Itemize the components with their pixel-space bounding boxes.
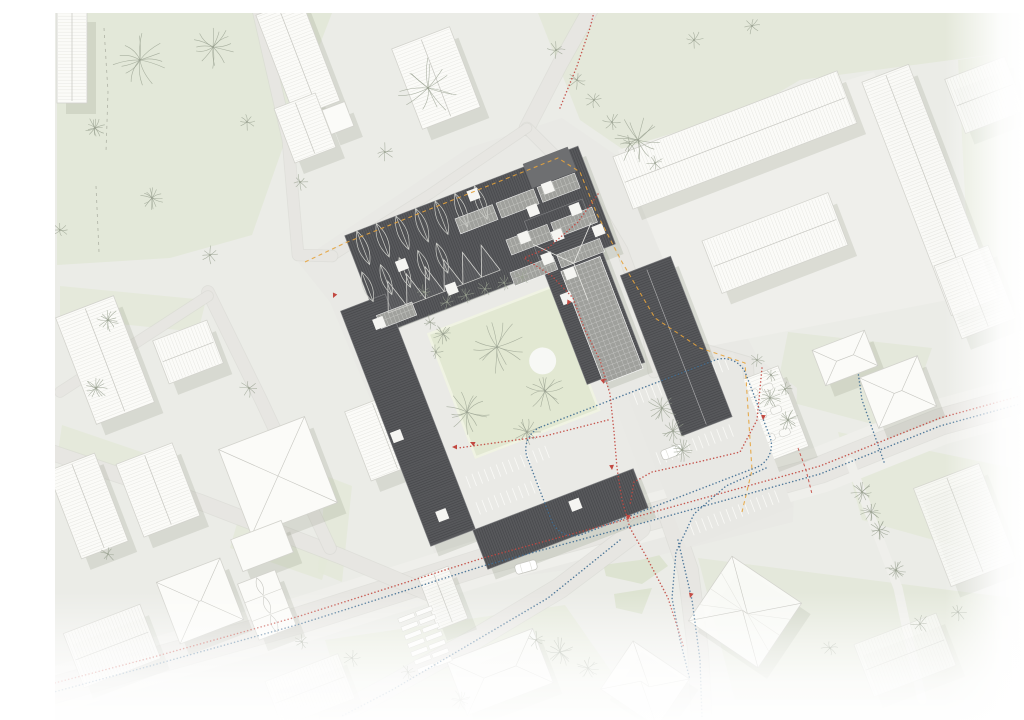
top-margin xyxy=(0,0,1024,13)
bottom-fade xyxy=(0,592,1024,720)
site-plan-page xyxy=(0,0,1024,720)
site-plan-drawing xyxy=(0,0,1024,720)
white-building xyxy=(57,11,87,103)
